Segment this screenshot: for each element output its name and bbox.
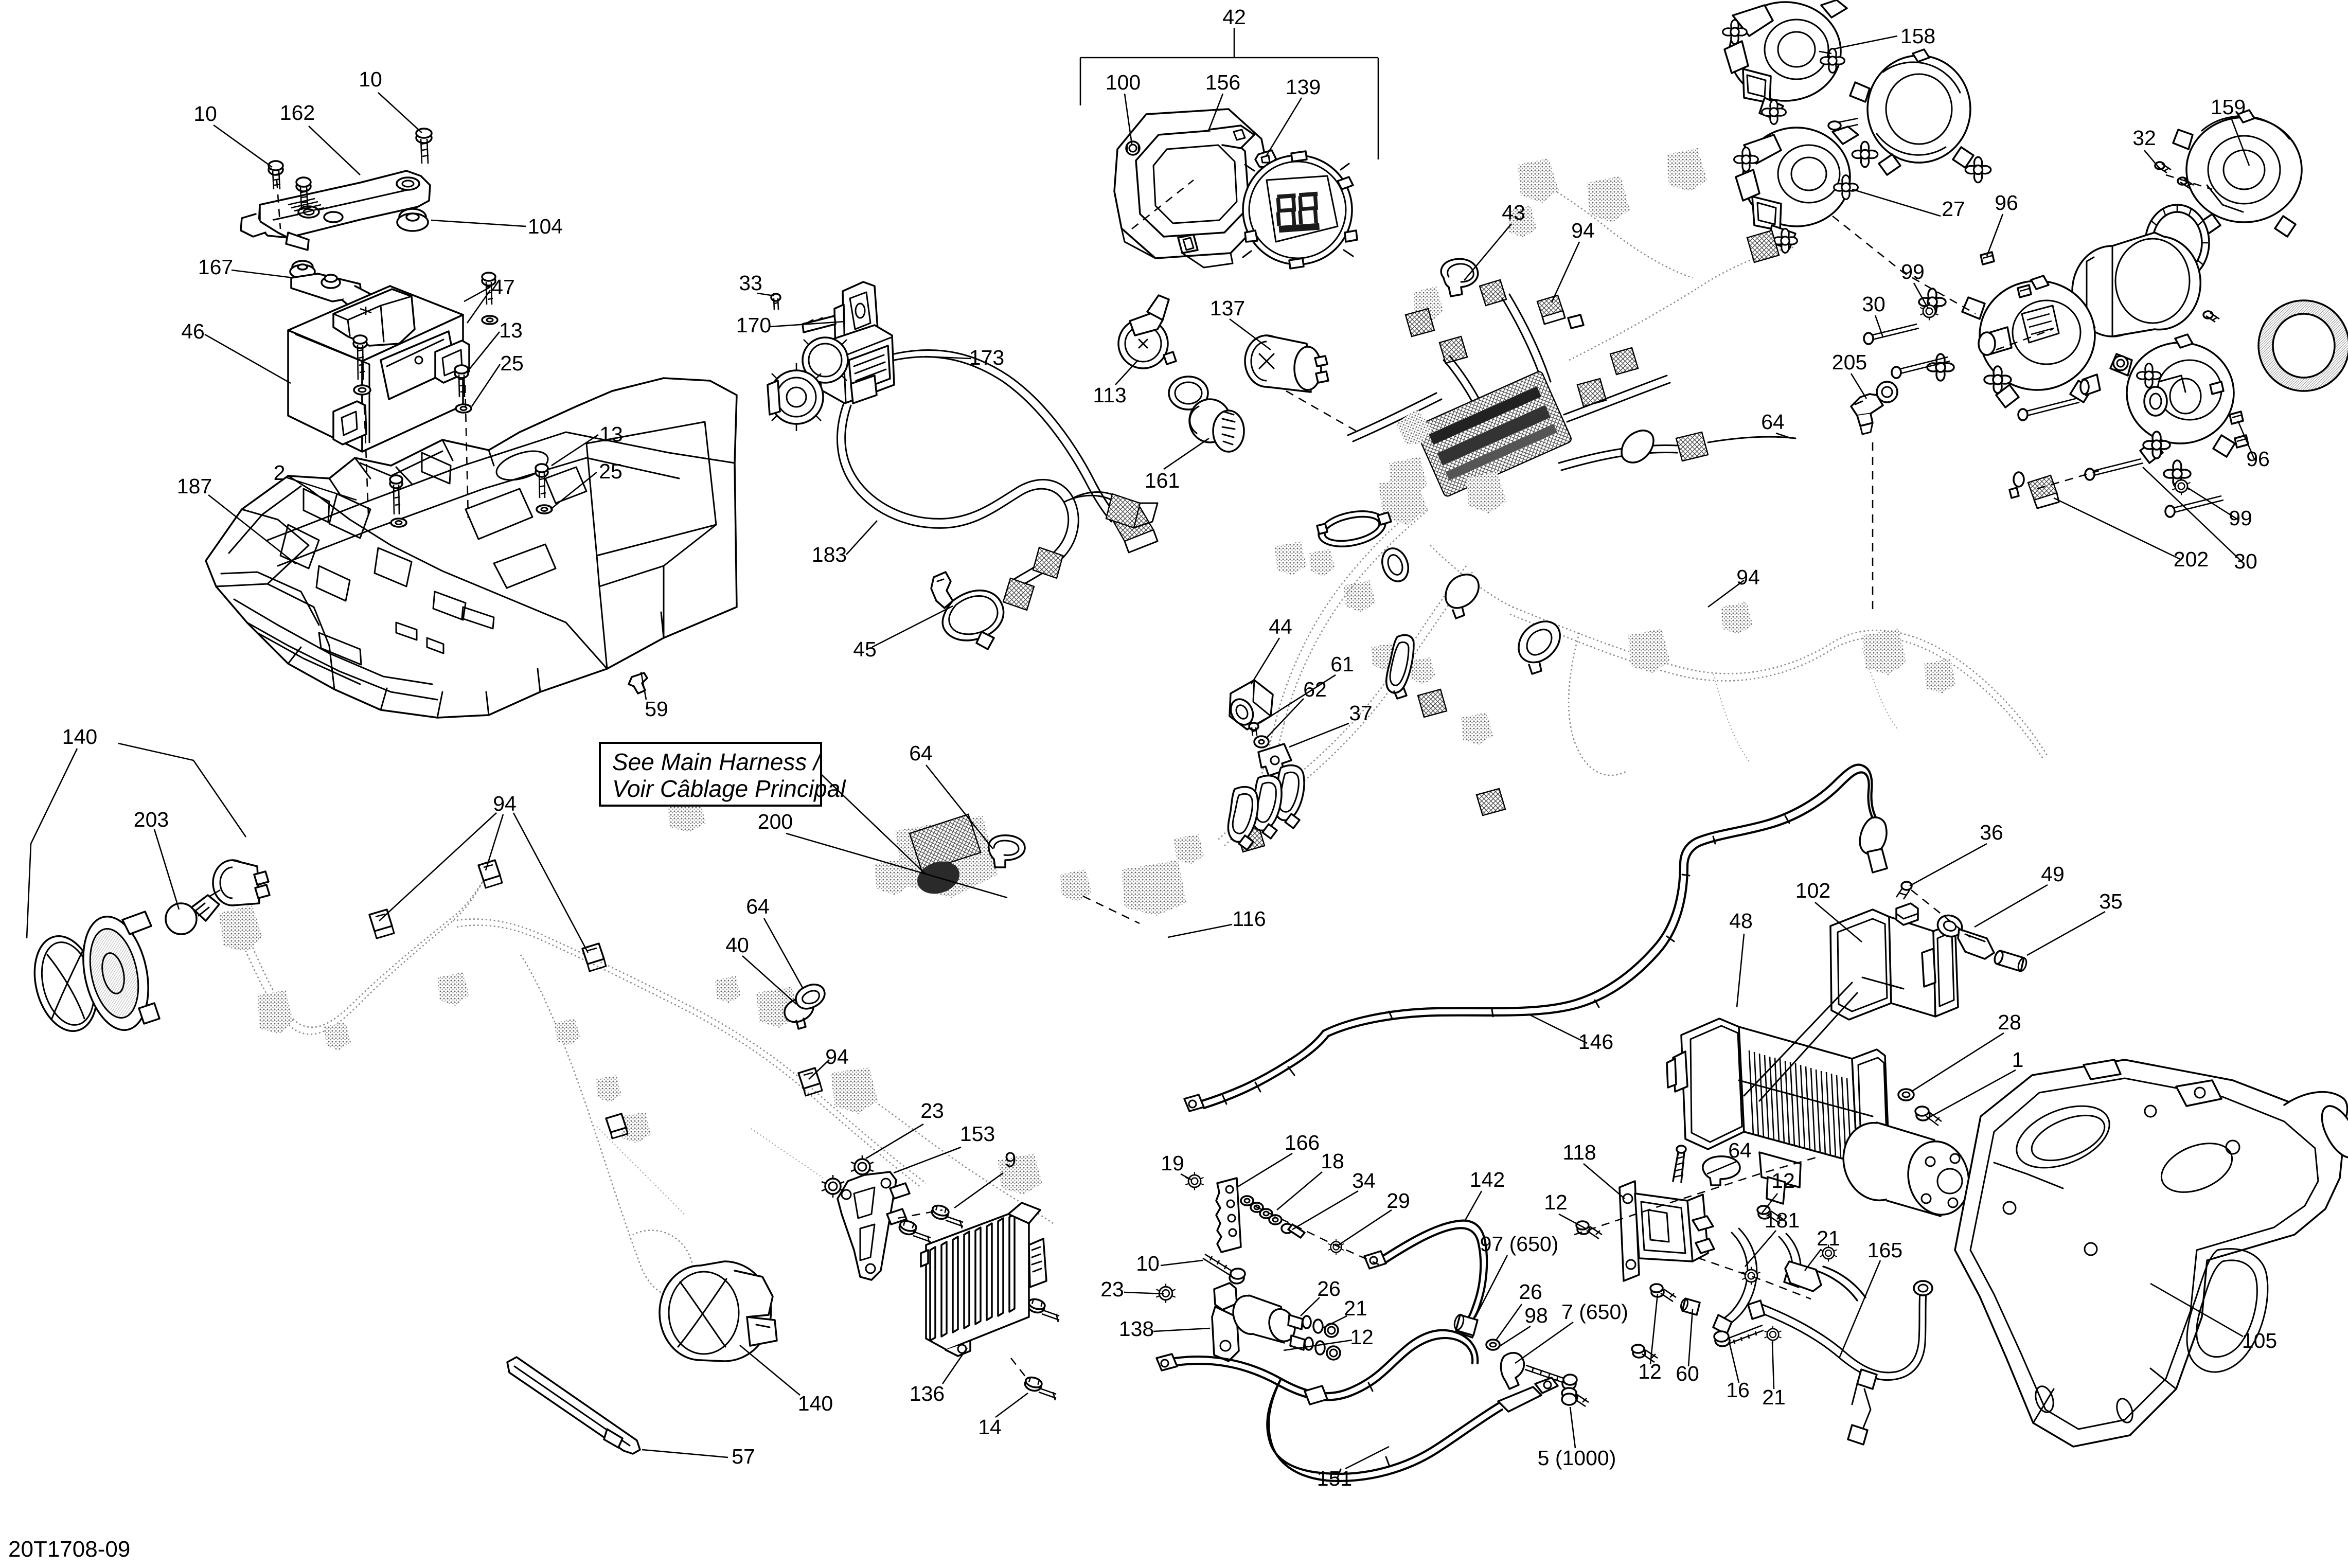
- svg-text:170: 170: [736, 313, 771, 337]
- svg-text:96: 96: [2246, 447, 2270, 471]
- svg-text:30: 30: [2234, 549, 2257, 573]
- svg-text:33: 33: [739, 271, 762, 295]
- svg-text:34: 34: [1352, 1169, 1376, 1192]
- svg-text:59: 59: [645, 697, 668, 721]
- svg-text:See Main Harness /: See Main Harness /: [612, 749, 822, 775]
- svg-text:37: 37: [1349, 701, 1373, 725]
- svg-text:48: 48: [1729, 909, 1753, 933]
- svg-text:27: 27: [1942, 197, 1965, 221]
- svg-text:25: 25: [599, 459, 622, 483]
- svg-text:60: 60: [1676, 1362, 1699, 1385]
- svg-text:99: 99: [1901, 260, 1925, 283]
- svg-text:94: 94: [1571, 219, 1595, 242]
- svg-text:10: 10: [359, 67, 382, 91]
- svg-text:12: 12: [1544, 1190, 1568, 1214]
- svg-text:64: 64: [1728, 1138, 1752, 1162]
- svg-text:97 (650): 97 (650): [1480, 1232, 1559, 1256]
- svg-text:142: 142: [1470, 1168, 1505, 1191]
- svg-text:158: 158: [1900, 24, 1935, 48]
- svg-text:98: 98: [1524, 1304, 1548, 1327]
- svg-text:12: 12: [1638, 1360, 1662, 1383]
- svg-text:140: 140: [798, 1392, 833, 1415]
- svg-text:35: 35: [2099, 889, 2123, 913]
- svg-text:21: 21: [1344, 1296, 1367, 1320]
- svg-text:203: 203: [134, 808, 169, 831]
- svg-text:94: 94: [1736, 565, 1760, 589]
- svg-text:159: 159: [2211, 95, 2246, 119]
- svg-text:183: 183: [812, 543, 847, 566]
- svg-text:57: 57: [732, 1445, 755, 1468]
- svg-text:165: 165: [1867, 1238, 1902, 1262]
- svg-text:46: 46: [181, 319, 205, 343]
- svg-text:21: 21: [1762, 1385, 1786, 1409]
- svg-text:28: 28: [1998, 1010, 2021, 1034]
- svg-text:181: 181: [1765, 1208, 1800, 1232]
- svg-text:23: 23: [1100, 1277, 1124, 1301]
- svg-text:23: 23: [920, 1099, 944, 1122]
- svg-text:14: 14: [978, 1415, 1002, 1439]
- svg-text:12: 12: [1771, 1169, 1795, 1192]
- svg-text:25: 25: [500, 351, 524, 375]
- svg-text:36: 36: [1980, 821, 2003, 844]
- svg-text:1: 1: [2012, 1048, 2024, 1072]
- svg-text:167: 167: [198, 255, 233, 279]
- svg-text:21: 21: [1817, 1226, 1840, 1250]
- svg-text:161: 161: [1145, 469, 1180, 492]
- svg-text:29: 29: [1386, 1189, 1410, 1213]
- svg-text:5 (1000): 5 (1000): [1538, 1446, 1616, 1470]
- svg-text:200: 200: [758, 810, 793, 833]
- svg-text:146: 146: [1578, 1030, 1613, 1054]
- svg-text:9: 9: [1005, 1148, 1017, 1171]
- svg-text:44: 44: [1269, 615, 1292, 638]
- svg-text:151: 151: [1317, 1467, 1352, 1490]
- svg-text:137: 137: [1210, 296, 1245, 320]
- svg-text:153: 153: [960, 1122, 995, 1146]
- svg-text:100: 100: [1106, 70, 1141, 94]
- svg-text:64: 64: [909, 741, 933, 765]
- svg-text:26: 26: [1519, 1280, 1542, 1304]
- svg-text:113: 113: [1093, 383, 1126, 407]
- svg-text:140: 140: [62, 725, 97, 749]
- svg-text:18: 18: [1321, 1149, 1344, 1173]
- svg-text:156: 156: [1205, 70, 1240, 94]
- svg-text:42: 42: [1222, 5, 1246, 29]
- svg-text:118: 118: [1562, 1141, 1596, 1164]
- svg-text:105: 105: [2242, 1329, 2277, 1352]
- svg-text:64: 64: [1761, 410, 1785, 434]
- svg-text:13: 13: [599, 422, 623, 446]
- svg-text:187: 187: [177, 474, 212, 498]
- svg-text:16: 16: [1726, 1378, 1750, 1402]
- svg-text:10: 10: [1136, 1252, 1160, 1275]
- svg-text:40: 40: [725, 933, 749, 957]
- svg-text:205: 205: [1832, 350, 1867, 374]
- svg-text:96: 96: [1995, 191, 2018, 215]
- svg-text:64: 64: [746, 895, 770, 918]
- svg-text:12: 12: [1350, 1325, 1374, 1349]
- svg-text:173: 173: [969, 346, 1004, 369]
- svg-text:49: 49: [2041, 862, 2065, 886]
- svg-text:13: 13: [499, 318, 523, 342]
- svg-text:10: 10: [193, 102, 217, 126]
- svg-text:19: 19: [1161, 1151, 1184, 1175]
- svg-text:Voir Câblage Principal: Voir Câblage Principal: [612, 775, 846, 802]
- svg-text:47: 47: [491, 275, 515, 299]
- svg-text:139: 139: [1286, 75, 1321, 99]
- svg-text:45: 45: [853, 637, 877, 661]
- svg-text:7 (650): 7 (650): [1561, 1300, 1628, 1324]
- svg-text:202: 202: [2174, 547, 2209, 571]
- svg-text:61: 61: [1330, 652, 1354, 676]
- svg-text:138: 138: [1119, 1317, 1154, 1341]
- svg-text:62: 62: [1303, 678, 1327, 701]
- svg-text:26: 26: [1317, 1277, 1341, 1300]
- svg-text:32: 32: [2132, 126, 2156, 150]
- svg-text:20T1708-09: 20T1708-09: [8, 1537, 130, 1562]
- svg-text:136: 136: [910, 1382, 945, 1405]
- svg-text:94: 94: [493, 792, 517, 815]
- svg-text:43: 43: [1502, 201, 1525, 224]
- svg-text:30: 30: [1862, 292, 1885, 316]
- svg-text:166: 166: [1285, 1131, 1320, 1154]
- svg-text:116: 116: [1232, 907, 1266, 931]
- svg-text:162: 162: [280, 101, 315, 124]
- svg-text:94: 94: [825, 1045, 849, 1068]
- svg-text:2: 2: [274, 461, 286, 485]
- svg-text:102: 102: [1795, 879, 1830, 902]
- svg-text:104: 104: [528, 215, 563, 238]
- svg-text:99: 99: [2229, 506, 2252, 530]
